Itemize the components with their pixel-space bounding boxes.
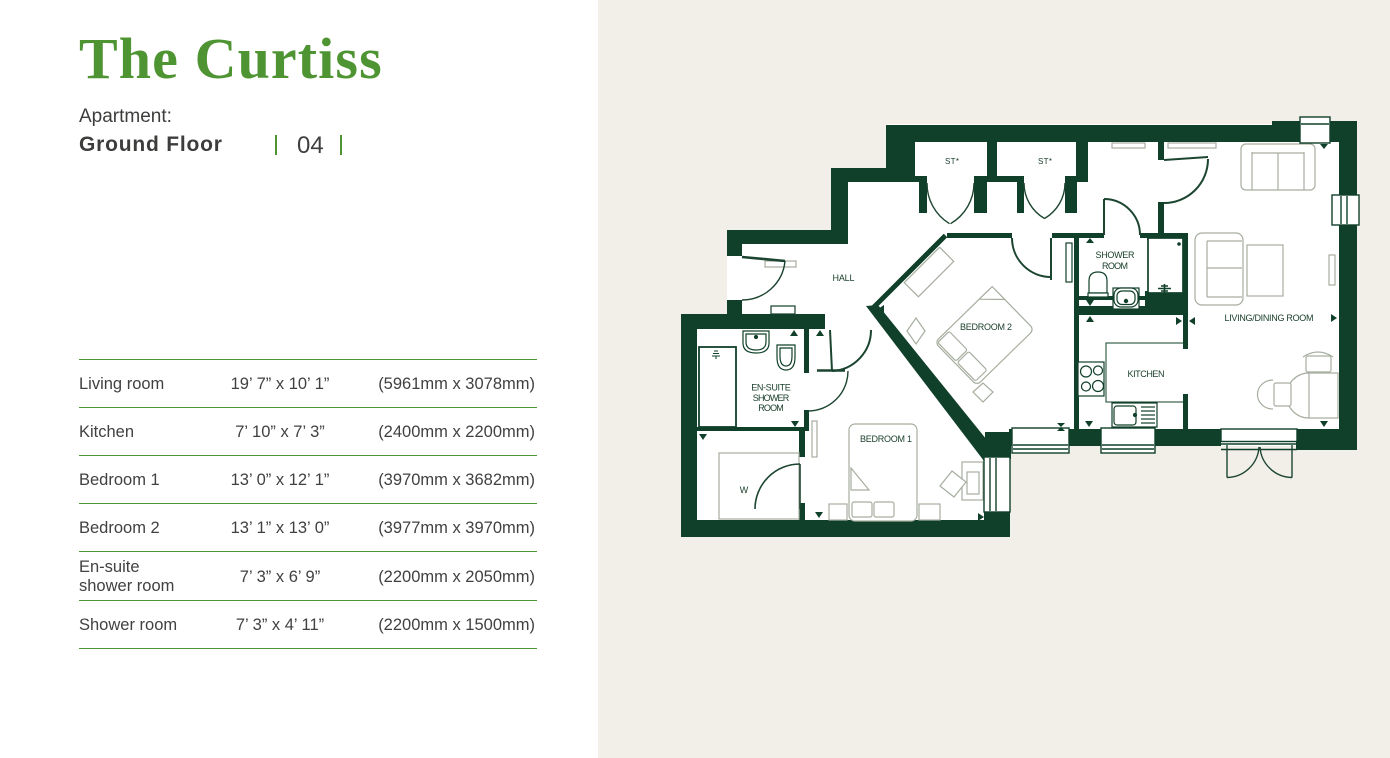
svg-text:HALL: HALL	[833, 273, 855, 283]
svg-text:ROOM: ROOM	[1102, 261, 1128, 271]
svg-text:W: W	[740, 485, 749, 495]
svg-text:SHOWER: SHOWER	[753, 393, 790, 403]
svg-text:ST*: ST*	[945, 157, 959, 166]
svg-text:BEDROOM 1: BEDROOM 1	[860, 434, 912, 444]
svg-text:SHOWER: SHOWER	[1096, 250, 1136, 260]
svg-text:EN-SUITE: EN-SUITE	[751, 383, 791, 393]
svg-text:LIVING/DINING ROOM: LIVING/DINING ROOM	[1225, 313, 1314, 323]
svg-text:ROOM: ROOM	[758, 403, 784, 413]
svg-text:KITCHEN: KITCHEN	[1128, 369, 1165, 379]
svg-text:BEDROOM 2: BEDROOM 2	[960, 322, 1012, 332]
svg-text:ST*: ST*	[1038, 157, 1052, 166]
